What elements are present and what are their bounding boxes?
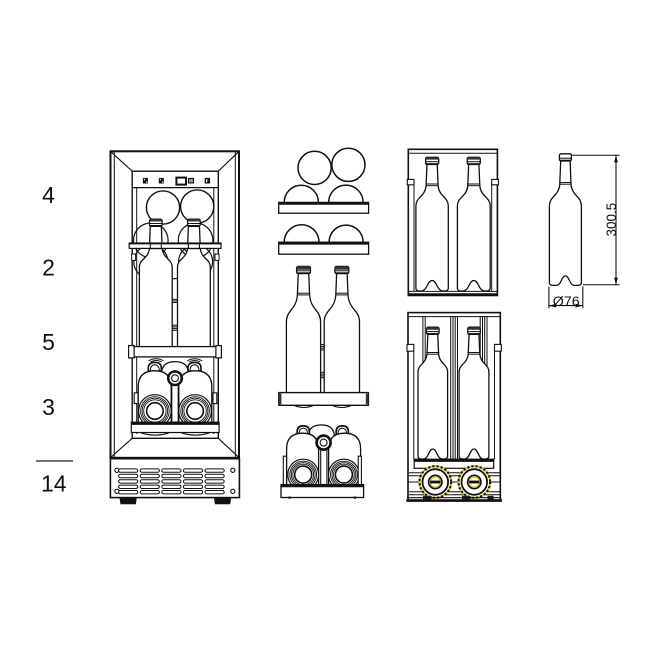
svg-text:2: 2 [42,255,55,281]
svg-text:Ø76: Ø76 [553,294,580,310]
svg-text:14: 14 [41,471,67,497]
svg-text:3: 3 [42,394,55,420]
svg-text:4: 4 [42,182,55,208]
svg-text:300.5: 300.5 [604,203,619,237]
svg-text:5: 5 [42,329,55,355]
